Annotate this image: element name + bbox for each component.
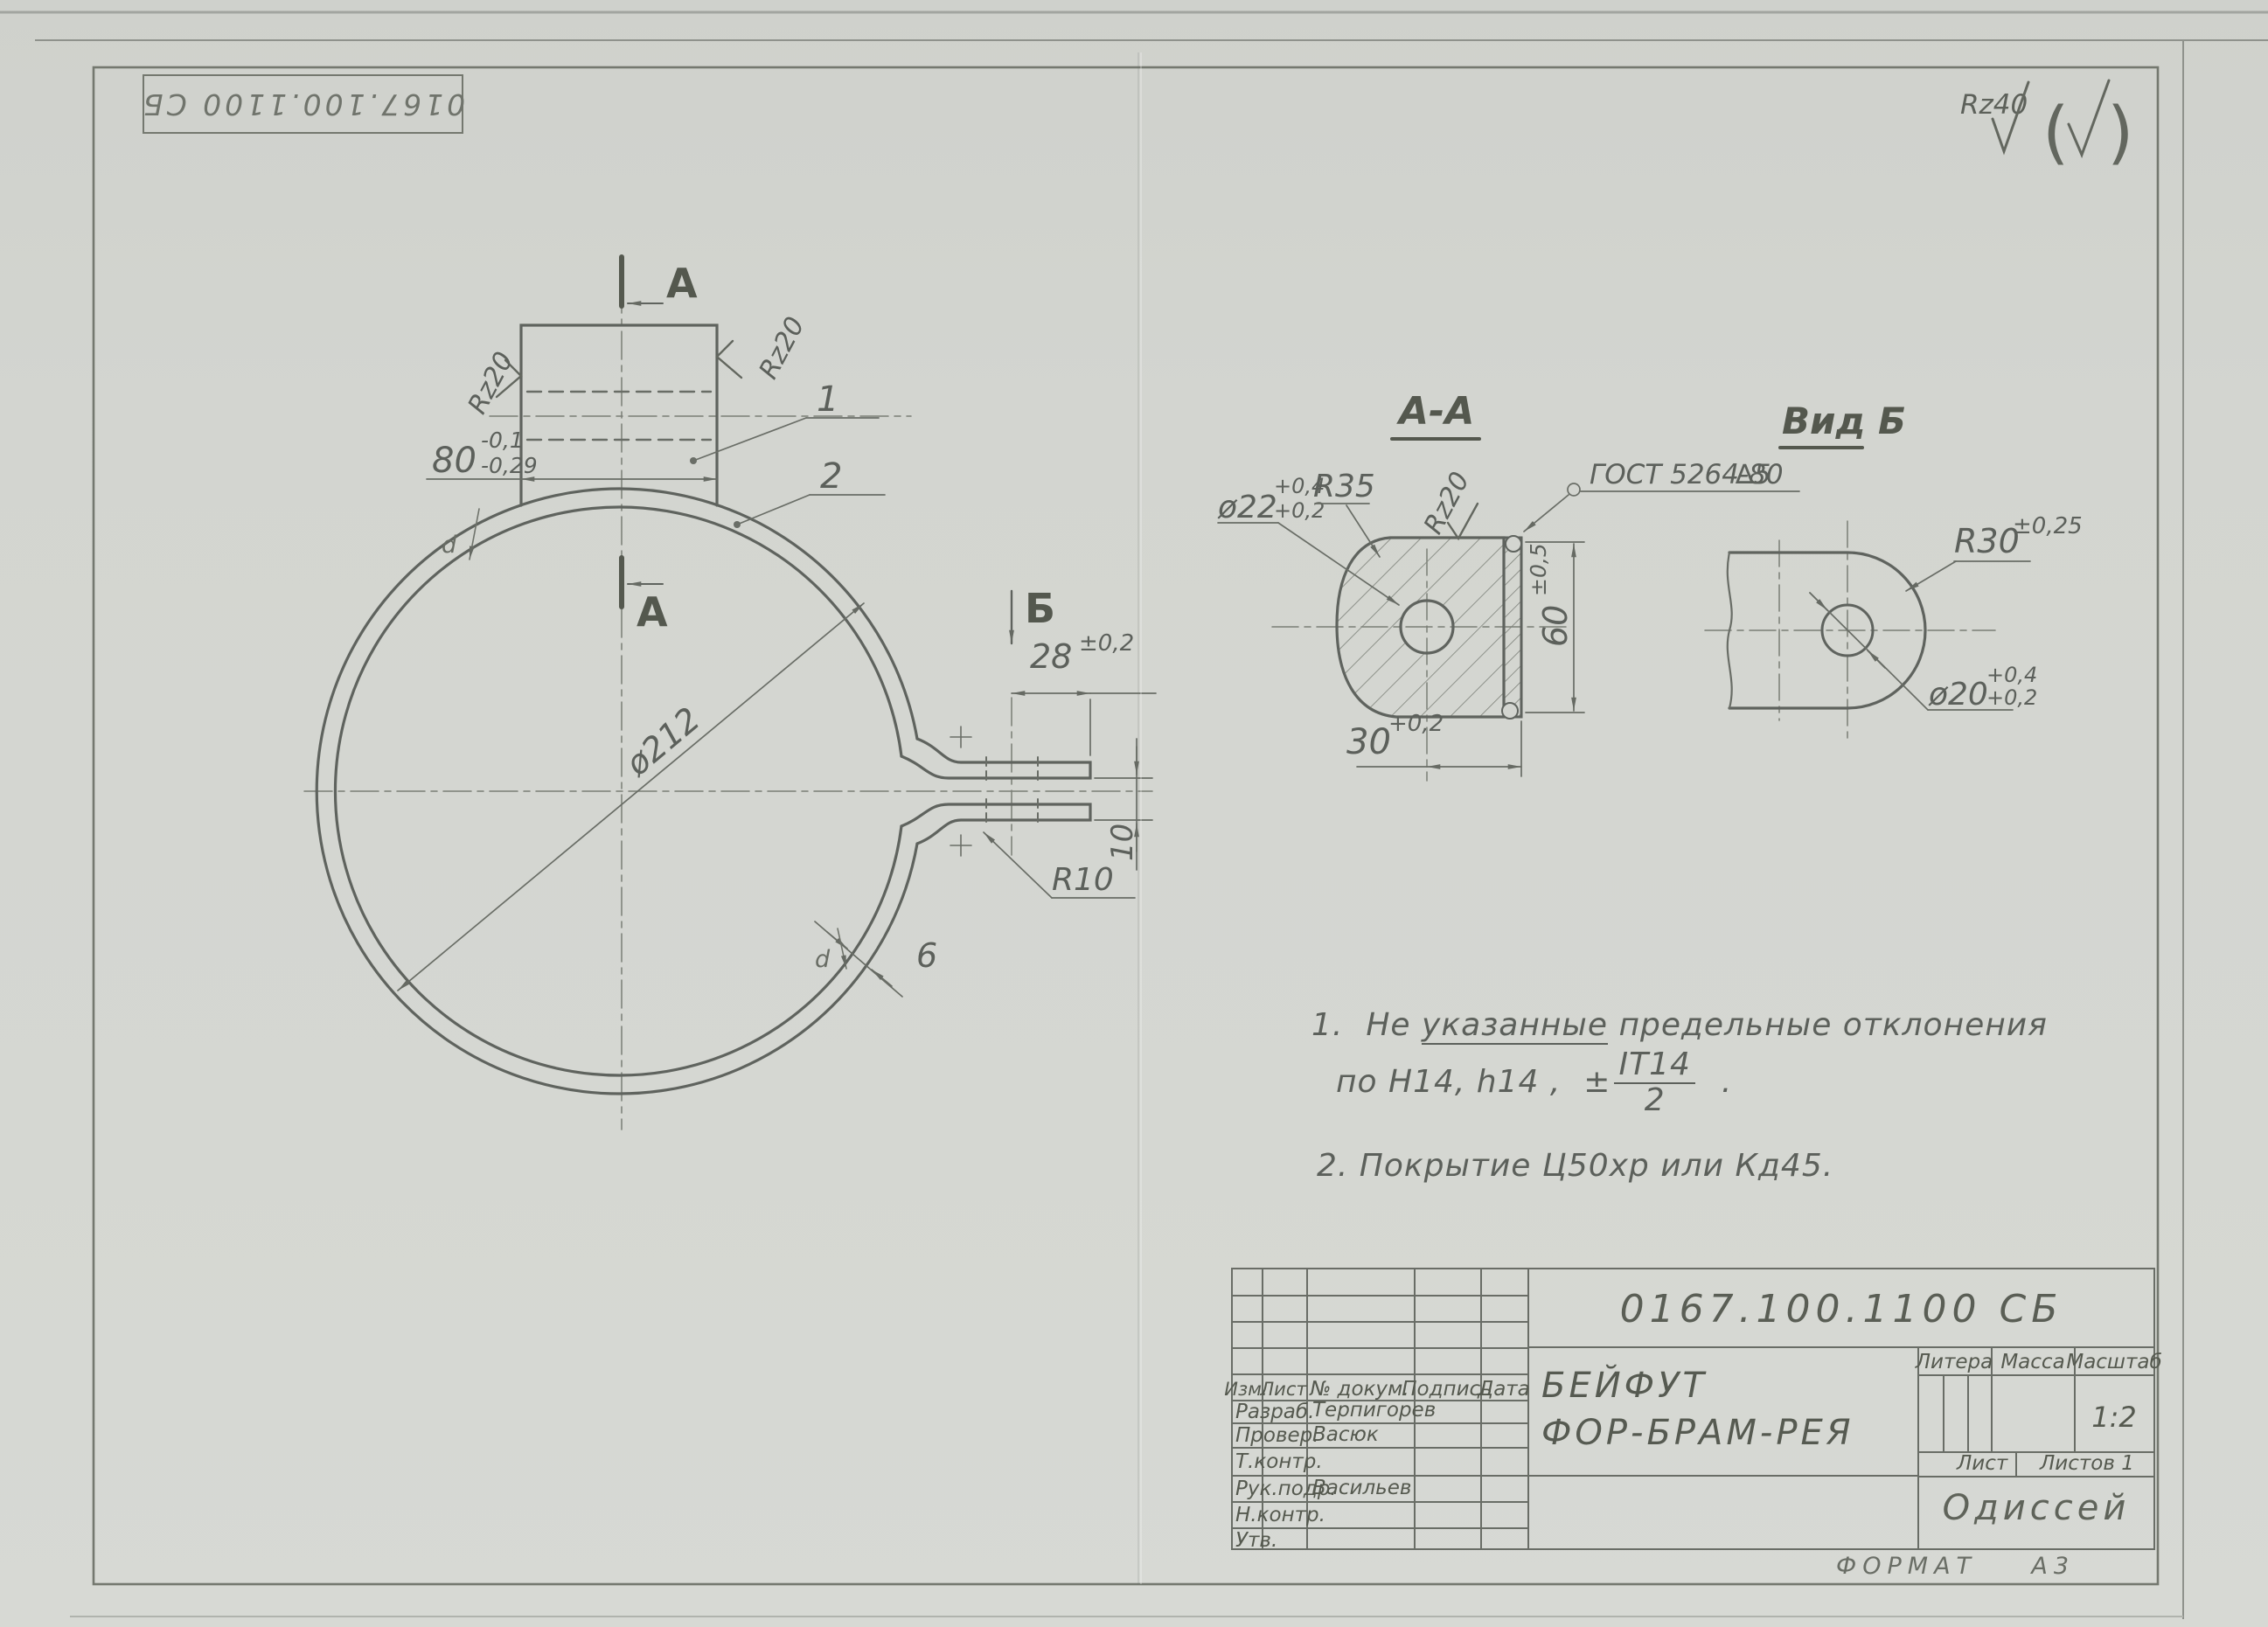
tb-line [1917, 1346, 1919, 1550]
technical-notes: 1.Не указанные предельные отклонения по … [1311, 1007, 2037, 1184]
tb-sheet-label: Лист [1957, 1452, 2007, 1475]
tb-mass-label: Масса [2000, 1351, 2064, 1373]
note-1-fraction-numerator: IT14 [1614, 1048, 1694, 1084]
note-1-underlined-word: указанные [1422, 1007, 1608, 1045]
tb-line [1231, 1501, 1527, 1503]
tb-line [1231, 1321, 1527, 1323]
format-note: ФОРМАТ А3 [1836, 1553, 2075, 1580]
dim-r35-value: R35 [1313, 469, 1375, 504]
tb-row-role: Провер. [1235, 1424, 1319, 1447]
callout-leaders [693, 418, 885, 525]
dim-80-value: 80 [432, 441, 477, 481]
tb-line [1943, 1374, 1944, 1451]
section-aa-title: A-A [1396, 389, 1474, 434]
note-1-fraction-denominator: 2 [1614, 1084, 1694, 1118]
note-1-line-1: 1.Не указанные предельные отклонения [1311, 1007, 2037, 1043]
tb-row-name: Терпигорев [1312, 1399, 1436, 1422]
block-roughness-marks [497, 341, 741, 397]
dim-dia212-line [398, 603, 864, 991]
tb-row-role: Утв. [1235, 1529, 1277, 1552]
dim-thickness-value: 6 [916, 936, 937, 975]
tb-scale-value: 1:2 [2091, 1401, 2137, 1434]
format-label: ФОРМАТ [1836, 1553, 1977, 1580]
note-1-text-b: предельные отклонения [1608, 1007, 2048, 1043]
aa-band-strip [1504, 538, 1521, 717]
dim-dia20-tol-upper: +0,4 [1986, 663, 2037, 687]
view-b-mark: Б [1012, 585, 1055, 643]
format-value: А3 [2031, 1553, 2075, 1580]
dim-dia22-value: ø22 [1217, 490, 1277, 525]
dim-r10-value: R10 [1052, 862, 1114, 898]
view-b-view: Вид Б R30 ±0,25 [1705, 400, 2083, 743]
section-aa-view: A-A ø22 +0,4 +0,2 [1217, 389, 1799, 781]
dim-dia20-tol-lower: +0,2 [1986, 685, 2037, 710]
dim-30-value: 30 [1346, 722, 1391, 762]
tb-row-name: Васильев [1312, 1477, 1411, 1499]
tb-header-list: Лист [1260, 1379, 1306, 1400]
roughness-corner: Rz40 ( ) [1960, 80, 2133, 172]
dim-80-tol-upper: -0,1 [481, 428, 524, 453]
view-b-title: Вид Б [1782, 400, 1906, 442]
dim-dia20-value: ø20 [1928, 677, 1988, 713]
tb-row-name: Васюк [1312, 1423, 1379, 1446]
callout-2-label: 2 [820, 456, 842, 497]
section-a-label-bottom: A [637, 588, 668, 636]
block-roughness-right: Rz20 [754, 312, 811, 384]
dim-r30-tol: ±0,25 [2013, 513, 2083, 539]
tb-line [1231, 1295, 1527, 1297]
tb-part-name-line2: ФОР-БРАМ-РЕЯ [1541, 1413, 1854, 1453]
tb-line [1527, 1268, 1529, 1550]
weld-mark-top: d [442, 532, 457, 559]
note-1-text-a: Не [1366, 1007, 1422, 1043]
inverted-doc-number-stamp: 0167.100.1100 СБ [143, 74, 463, 134]
dim-28-value: 28 [1030, 637, 1072, 676]
paper-fold-crease [1137, 52, 1139, 1584]
tb-row-role: Т.контр. [1235, 1450, 1323, 1473]
aa-roughness-label: Rz20 [1418, 467, 1476, 539]
weld-mark-bottom: d [815, 946, 831, 973]
block-roughness-left: Rz20 [463, 347, 520, 419]
callout-2-dot [734, 521, 741, 528]
section-a-marks: A A [622, 257, 698, 636]
tb-line [1231, 1447, 1527, 1449]
note-1-period: . [1722, 1064, 1732, 1100]
roughness-check2-icon [2069, 80, 2109, 155]
tb-line [1917, 1476, 2155, 1478]
view-b-label: Б [1025, 585, 1055, 632]
tb-sheets-label: Листов 1 [2040, 1452, 2134, 1475]
section-a-label-top: A [666, 260, 698, 307]
dim-r30 [1906, 561, 2030, 591]
note-1-plus-minus: ± [1583, 1064, 1611, 1100]
tb-scale-label: Масштаб [2066, 1351, 2161, 1373]
dim-28-tol: ±0,2 [1079, 630, 1134, 657]
paper-fold-crease-highlight [1140, 52, 1142, 1584]
dim-10-value: 10 [1105, 824, 1140, 861]
note-1-fraction: IT142 [1614, 1048, 1694, 1118]
note-2-text: 2. Покрытие Ц50хр или Кд45. [1317, 1148, 1833, 1184]
dim-60-tol: ±0,5 [1526, 543, 1551, 596]
tb-line [1527, 1346, 2155, 1348]
dim-60-value: 60 [1536, 605, 1575, 647]
tb-line [2015, 1451, 2017, 1476]
note-1-tolerance-classes: по H14, h14 , [1336, 1064, 1561, 1100]
dim-30-tol: +0,2 [1388, 711, 1444, 737]
tb-line [1231, 1347, 1527, 1349]
weld-note [1524, 483, 1799, 532]
note-2: 2. Покрытие Ц50хр или Кд45. [1311, 1148, 2037, 1184]
paren-open: ( [2042, 94, 2069, 172]
lug-block [521, 325, 717, 505]
drawing-sheet: Rz40 ( ) [0, 0, 2268, 1627]
dim-28 [1012, 693, 1156, 755]
note-1-number: 1. [1311, 1007, 1343, 1043]
weld-note-size: ∆5 [1735, 459, 1771, 490]
tb-line [1480, 1268, 1482, 1550]
tb-line [1231, 1373, 1527, 1375]
note-1-line-2: по H14, h14 ,±IT142. [1311, 1048, 2037, 1118]
main-view: A A Б 80 -0,1 -0,29 Rz20 [304, 257, 1156, 1130]
dim-80-tol-lower: -0,29 [481, 453, 538, 478]
title-block: Изм. Лист № докум. Подпись Дата Разраб. … [1231, 1268, 2155, 1550]
tb-litera-label: Литера [1916, 1351, 1993, 1373]
tb-line [1917, 1374, 2155, 1376]
tb-organization: Одиссей [1943, 1488, 2131, 1528]
tb-header-date: Дата [1478, 1378, 1530, 1401]
paren-close: ) [2107, 94, 2133, 172]
inverted-doc-number: 0167.100.1100 СБ [140, 87, 465, 122]
dim-r30-value: R30 [1954, 522, 2020, 560]
callout-1-label: 1 [817, 379, 838, 420]
tb-line [1967, 1374, 1969, 1451]
callout-1-dot [690, 457, 697, 464]
tb-row-role: Разраб. [1235, 1401, 1314, 1423]
tb-line [1527, 1475, 1917, 1477]
tb-part-name-line1: БЕЙФУТ [1541, 1366, 1708, 1406]
tb-header-doc: № докум. [1310, 1378, 1409, 1401]
tb-doc-number: 0167.100.1100 СБ [1620, 1287, 2063, 1331]
tb-row-role: Н.контр. [1235, 1504, 1325, 1526]
